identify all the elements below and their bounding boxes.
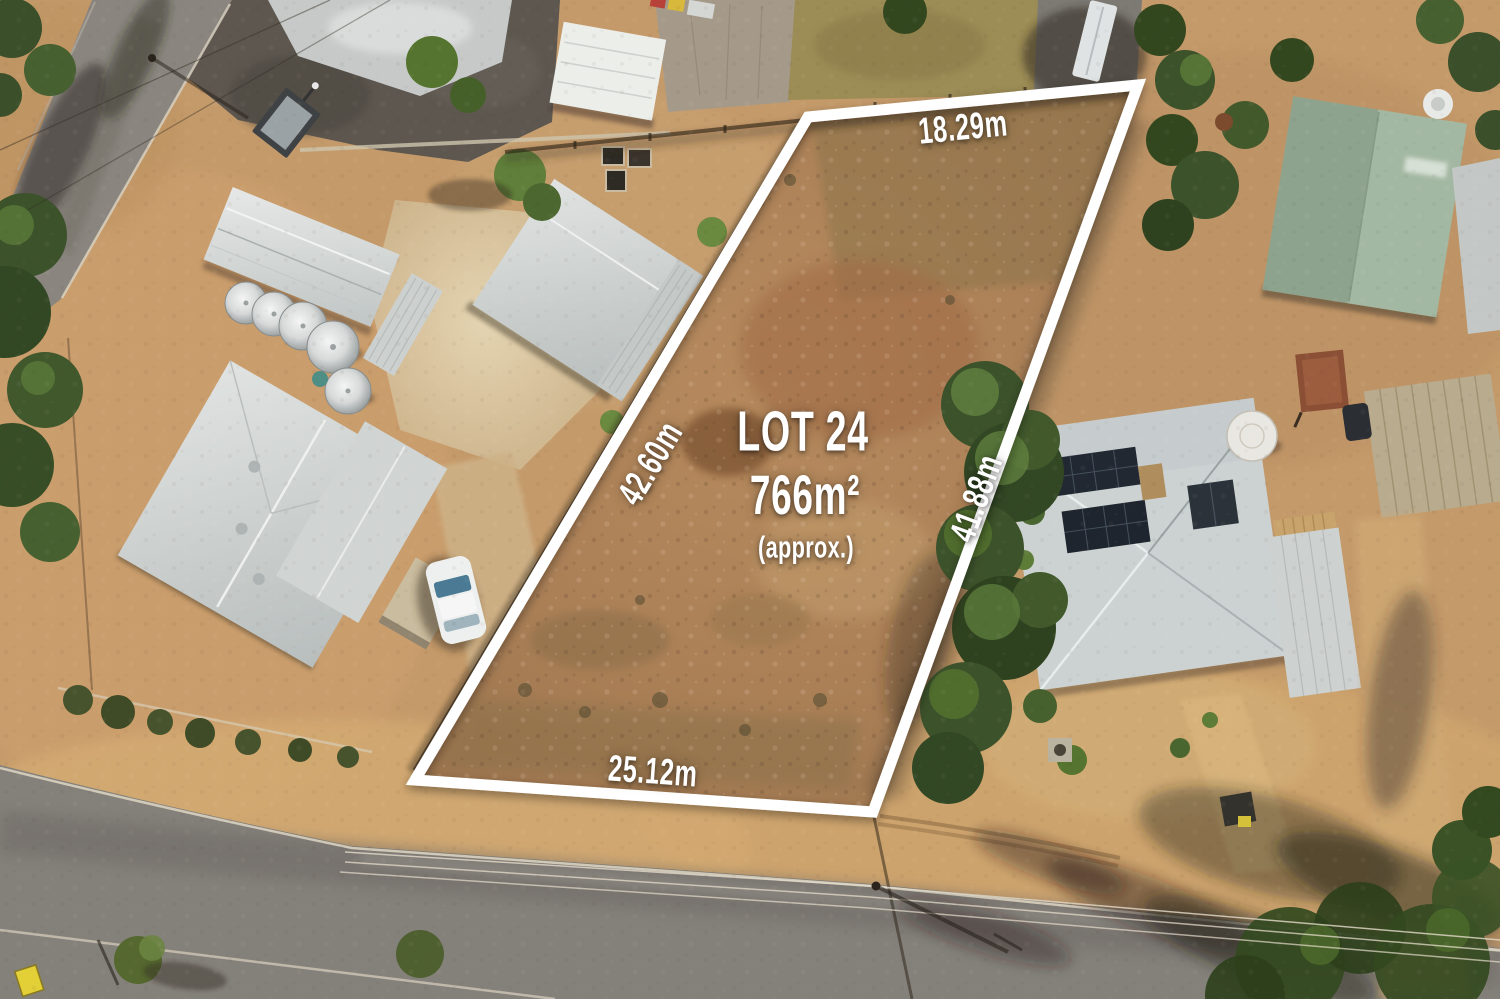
aerial-photo: LOT 24 766m² (approx.) 18.29m 42.60m 41.… xyxy=(0,0,1500,999)
area-approx-label: (approx.) xyxy=(758,532,854,563)
measurement-top: 18.29m xyxy=(917,104,1010,149)
lot-area-label: 766m² xyxy=(750,467,860,523)
measurement-bottom: 25.12m xyxy=(607,749,699,792)
lot-number-label: LOT 24 xyxy=(737,404,868,461)
